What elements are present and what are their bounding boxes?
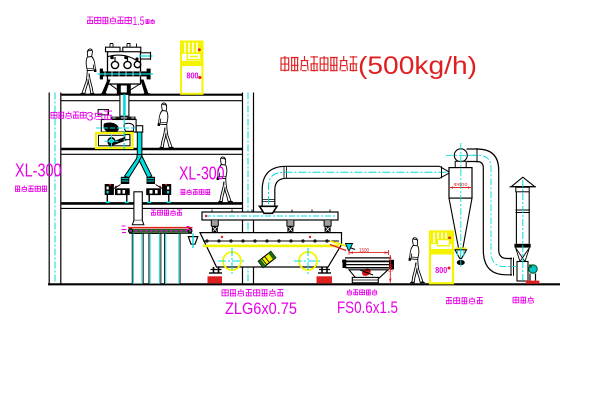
svg-text:1500: 1500: [359, 248, 369, 254]
svg-text:ZLG6x0.75: ZLG6x0.75: [225, 299, 297, 318]
svg-text:800: 800: [187, 72, 199, 81]
svg-text:XL-300: XL-300: [15, 161, 62, 181]
svg-text:800: 800: [435, 266, 447, 275]
svg-text:FS0.6x1.5: FS0.6x1.5: [337, 298, 398, 317]
svg-text:(500kg/h): (500kg/h): [358, 52, 477, 80]
svg-text:1.5: 1.5: [133, 14, 145, 28]
svg-text:540: 540: [389, 263, 395, 272]
svg-text:XL-300: XL-300: [179, 164, 225, 184]
svg-text:3: 3: [87, 112, 94, 124]
